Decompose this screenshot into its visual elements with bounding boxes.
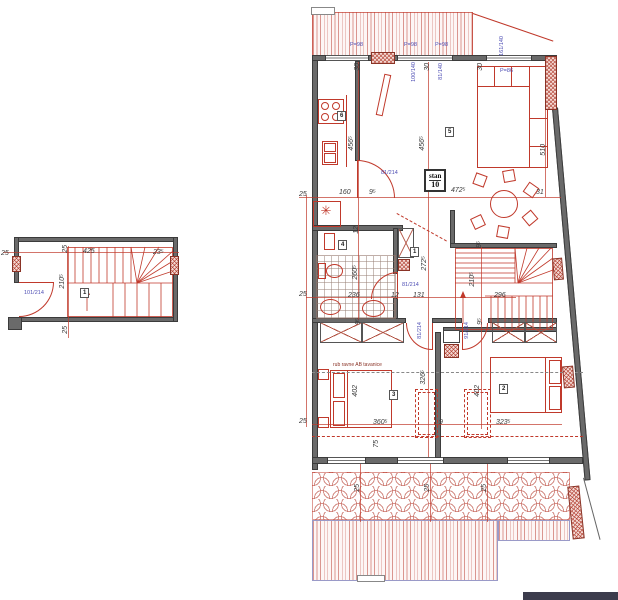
dimension-label: 25 (299, 191, 307, 198)
dimension-label: 25 (62, 326, 69, 334)
dimension-label: 131 (413, 292, 425, 299)
dimension-label: 25 (354, 484, 361, 492)
sofa (477, 66, 548, 168)
opening-size-label: 81/214 (381, 170, 398, 176)
roof-hatch-bottom-step (498, 520, 570, 541)
chair (472, 172, 487, 187)
window (326, 55, 368, 61)
unit-label-line1: stan (429, 172, 441, 180)
wall-top (452, 55, 487, 61)
pillow (549, 386, 561, 410)
dimension-label: 210⁵ (469, 272, 476, 287)
wall-bottom (365, 457, 398, 464)
opening-size-label: 81/140 (438, 63, 444, 80)
window (487, 55, 531, 61)
wall-bottom (549, 457, 583, 464)
dimension-line (312, 424, 562, 425)
dimension-label: 402 (352, 385, 359, 397)
masonry-pier-hatch (545, 56, 557, 110)
wardrobe (320, 322, 362, 343)
unit-label-box: stan 10 (424, 169, 446, 192)
opening-size-label: P=98 (350, 42, 363, 48)
sink-basin (324, 143, 336, 152)
dimension-label: 236 (348, 292, 360, 299)
sink-basin (324, 153, 336, 163)
dimension-label: 323⁵ (496, 419, 511, 426)
roof-detail-rect (311, 7, 335, 15)
wall (8, 317, 22, 330)
roof-window-projection-inner (467, 392, 488, 435)
burner (321, 113, 329, 121)
burner (321, 102, 329, 110)
wall-bottom (312, 457, 328, 464)
dimension-label: 25 (424, 484, 431, 492)
adjacent-drawing-edge (523, 592, 618, 600)
dimension-label: 75 (373, 440, 380, 448)
slab-edge-note: rub ravne AB tavanice (333, 362, 382, 368)
vent-symbol: ✳ (312, 203, 340, 219)
roof-tile-band (312, 472, 570, 520)
dimension-label: 402 (474, 385, 481, 397)
window (328, 457, 365, 464)
nightstand (318, 369, 329, 380)
dimension-label: 31 (536, 189, 544, 196)
bidet (362, 300, 385, 317)
counter-edge (346, 95, 347, 167)
masonry-pier-hatch (552, 258, 564, 281)
ceiling-break-line (312, 436, 583, 437)
opening-size-label: P=98 (435, 42, 448, 48)
window (508, 457, 549, 464)
burner (332, 102, 340, 110)
wall (14, 237, 178, 242)
pillow (333, 401, 345, 426)
wardrobe (525, 322, 557, 343)
dimension-line (430, 464, 431, 522)
building-edge (583, 478, 601, 540)
pillow (333, 373, 345, 398)
room-number-label: 1 (80, 288, 89, 298)
dimension-line (428, 62, 429, 457)
roof-hatch-top (312, 12, 473, 57)
masonry-pier-hatch (562, 366, 575, 389)
boiler (324, 233, 335, 250)
masonry-pier-hatch (170, 256, 179, 275)
opening-size-label: 101/214 (24, 290, 44, 296)
shaft (443, 330, 460, 343)
dimension-label: 456⁵ (348, 136, 355, 151)
room-number-label: 1 (410, 247, 419, 257)
chair (522, 210, 539, 227)
door-leaf (432, 323, 433, 350)
wall (14, 317, 178, 322)
chair (502, 169, 516, 183)
sofa-cushion (494, 66, 495, 86)
dimension-line (358, 62, 359, 320)
opening-size-label: 81/214 (417, 322, 423, 339)
dimension-label: 30 (424, 63, 431, 71)
floor-plan: ✳ (0, 0, 618, 600)
wall-bottom (443, 457, 508, 464)
wardrobe (492, 322, 525, 343)
roof-hatch-bottom (312, 520, 498, 581)
window (398, 55, 452, 61)
dimension-label: 25 (299, 418, 307, 425)
wall (173, 237, 178, 322)
dimension-label: 260⁵ (352, 265, 359, 280)
dimension-label: 30 (354, 63, 361, 71)
opening-size-label: 161/140 (499, 36, 505, 56)
dimension-label: 425 (83, 248, 95, 255)
shaft-hatch (398, 259, 410, 271)
wall-top (312, 55, 326, 61)
dimension-label: 9⁵ (355, 318, 362, 325)
dimension-label: 272⁵ (421, 256, 428, 271)
dimension-line (306, 195, 307, 427)
room-number-label: 6 (337, 111, 346, 121)
chair (470, 214, 486, 230)
dimension-line (68, 246, 69, 338)
masonry-pier-hatch (371, 52, 395, 64)
roof-edge-line (473, 13, 554, 42)
sofa-back (477, 86, 530, 87)
unit-label-line2: 10 (429, 180, 441, 189)
chair (496, 225, 510, 239)
dimension-label: 510 (540, 144, 547, 156)
dimension-label: 9 (439, 419, 443, 426)
dimension-label: 12 (353, 226, 360, 234)
washbasin (320, 299, 341, 315)
door-swing-arc (357, 160, 395, 198)
dimension-label: 12 (391, 292, 399, 299)
opening-size-label: 81/214 (402, 282, 419, 288)
dimension-label: 296 (494, 292, 506, 299)
roof-detail-rect (357, 575, 385, 582)
dimension-label: 25 (299, 291, 307, 298)
bed-line (347, 370, 348, 428)
dimension-label: 360⁵ (373, 419, 388, 426)
toilet-bowl (326, 264, 343, 278)
dimension-line (487, 464, 488, 522)
dimension-line (481, 247, 482, 429)
dimension-label: 472⁵ (451, 187, 466, 194)
dimension-line (360, 464, 361, 522)
roof-window-projection-inner (418, 392, 435, 435)
dimension-label: 9⁵ (477, 318, 484, 325)
room-number-label: 5 (445, 127, 454, 137)
dimension-label: 210⁵ (59, 274, 66, 289)
wall-stairs (450, 210, 455, 246)
dining-table (490, 190, 518, 218)
dimension-label: 160 (339, 189, 351, 196)
nightstand (318, 417, 329, 428)
shaft-hatch (444, 344, 459, 358)
dimension-label: 25 (1, 250, 9, 257)
opening-size-label: P=86 (500, 68, 513, 74)
dimension-label: 23⁵ (153, 249, 164, 256)
dimension-label: 9⁵ (369, 189, 376, 196)
opening-size-label: 100/140 (411, 62, 417, 82)
dimension-label: 326⁵ (420, 370, 427, 385)
door-swing-arc (19, 282, 54, 317)
wardrobe (362, 322, 404, 343)
room-number-label: 2 (499, 384, 508, 394)
dimension-label: 9⁵ (476, 241, 483, 248)
dimension-label: 456⁵ (419, 136, 426, 151)
dimension-label: 25 (62, 245, 69, 253)
dimension-line (299, 197, 561, 198)
bed-line (545, 357, 546, 413)
opening-size-label: 91/214 (464, 322, 470, 339)
room-number-label: 3 (389, 390, 398, 400)
dimension-line (306, 297, 516, 298)
toilet-tank (318, 263, 326, 279)
opening-size-label: P=98 (404, 42, 417, 48)
dimension-label: 30 (477, 63, 484, 71)
wardrobe-slanted (376, 74, 392, 117)
room-number-label: 4 (338, 240, 347, 250)
window (398, 457, 443, 464)
ceiling-break-line (312, 372, 583, 373)
stairs (67, 247, 173, 317)
stairs (455, 248, 553, 330)
masonry-pier-hatch (12, 256, 21, 272)
dimension-label: 25 (481, 484, 488, 492)
sofa-back (529, 66, 530, 168)
